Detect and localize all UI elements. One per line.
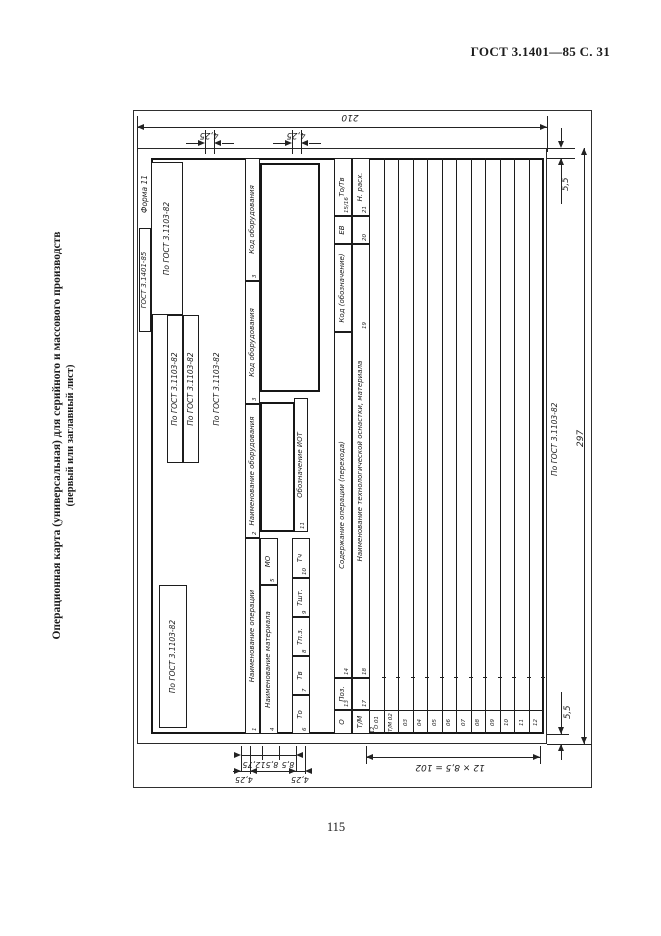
line-number-cell: 07: [457, 710, 471, 734]
page-number: 115: [316, 820, 356, 835]
stamp-box-a: По ГОСТ 3.1103-82: [151, 162, 183, 315]
pos-column-tick: [541, 677, 545, 678]
body-line: 03: [399, 158, 414, 734]
body-line: О 0112: [370, 158, 385, 734]
body-line: 04: [414, 158, 429, 734]
line-number-cell: 06: [443, 710, 457, 734]
body-line: 11: [515, 158, 530, 734]
graph-num-1: 1: [253, 728, 259, 732]
dim-sheet-width: 210: [330, 111, 370, 122]
stamp-box-c: По ГОСТ 3.1103-82: [159, 585, 187, 728]
col-operation-label: Наименование операции: [249, 590, 256, 682]
graph-num-12: 12: [371, 727, 376, 733]
graph-num: 7: [303, 689, 309, 693]
time-label: То: [297, 710, 304, 719]
document-page: ГОСТ 3.1401—85 С. 31 Операционная карта …: [0, 0, 661, 936]
graph-num-17: 17: [363, 700, 369, 707]
col-material-label: Наименование материала: [265, 611, 272, 708]
graph-num: 9: [303, 611, 309, 615]
dim-margin-right: 5,5: [560, 170, 572, 198]
time-label: Тч: [297, 554, 304, 562]
caption-line-1: Операционная карта (универсальная) для с…: [50, 228, 64, 643]
graph-num-4: 4: [271, 728, 277, 732]
col-time-4: Тшт.9: [292, 578, 310, 617]
time-columns-row: То6Тв7Тп.з.8Тшт.9Тч10: [292, 538, 310, 734]
row-o-content: Содержание операции (перехода): [334, 332, 352, 678]
col-equipment-code-2: Код оборудования 3: [245, 158, 260, 281]
graph-num: 8: [303, 650, 309, 654]
dim-body-rows: 12 × 8,5 = 102: [395, 761, 505, 772]
time-label: Тшт.: [297, 589, 304, 606]
col-iot-label: Обозначение ИОТ: [297, 432, 304, 498]
body-line: 06: [443, 158, 458, 734]
col-iot: Обозначение ИОТ 11: [294, 398, 308, 532]
caption-line-2: (первый или заглавный лист): [64, 228, 77, 643]
dim-sheet-height: 297: [575, 420, 588, 456]
col-equip-code2-label: Код оборудования: [249, 185, 256, 254]
line-number-cell: 10: [501, 710, 515, 734]
col-operation-name: Наименование операции 1: [245, 538, 260, 734]
line-number-cell: 05: [428, 710, 442, 734]
graph-num-19: 19: [363, 322, 369, 329]
col-time-1: То6: [292, 695, 310, 734]
figure-caption: Операционная карта (универсальная) для с…: [50, 228, 78, 643]
graph-num-21: 21: [363, 206, 369, 213]
dim-top-2: 4,25: [280, 130, 312, 140]
dim-margin-left: 5,5: [562, 698, 574, 726]
col-mo: МО 5: [260, 538, 278, 585]
graph-num: 10: [303, 568, 309, 575]
col-mo-label: МО: [265, 556, 272, 568]
body-line: Т/М 02: [385, 158, 400, 734]
body-line: 07: [457, 158, 472, 734]
line-number-cell: 08: [472, 710, 486, 734]
body-line: 08: [472, 158, 487, 734]
row-tm-letter: Т/М: [352, 710, 370, 734]
line-number-cell: 11: [515, 710, 529, 734]
graph-num-3b: 3: [253, 275, 259, 279]
col-time-5: Тч10: [292, 538, 310, 578]
col-equipment-label: Наименование оборудования: [249, 417, 256, 526]
col-material-name: Наименование материала 4: [260, 585, 278, 734]
graph-num-11: 11: [301, 522, 307, 529]
stamp-zone-note: По ГОСТ 3.1103-82: [209, 315, 225, 463]
side-note: По ГОСТ 3.1103-82: [548, 388, 561, 490]
dim-top-1: 4,25: [193, 130, 225, 140]
line-number-cell: Т/М 02: [385, 710, 399, 734]
graph-num-20: 20: [363, 234, 369, 241]
line-number-cell: О 0112: [370, 710, 384, 734]
time-label: Тп.з.: [297, 628, 304, 645]
line-number-cell: 12: [530, 710, 544, 734]
dim-bottom-5: 4,25: [287, 774, 313, 784]
dim-bottom-2: 8,5: [264, 759, 280, 769]
graph-num: 6: [303, 728, 309, 732]
graph-num-13: 13: [345, 700, 351, 707]
row-o-letter: О: [334, 710, 352, 734]
col-equipment-name: Наименование оборудования 2: [245, 404, 260, 538]
dim-bottom-4: 4,25: [231, 774, 257, 784]
graph-num-2: 2: [253, 532, 259, 536]
body-line: 09: [486, 158, 501, 734]
graph-num-3a: 3: [253, 398, 259, 402]
row-o-ev: ЕВ: [334, 216, 352, 244]
designation-box: ГОСТ 3.1401-85: [139, 228, 151, 332]
row-o-code: Код (обозначение): [334, 244, 352, 332]
graph-num-15-16: 15/16: [345, 197, 351, 213]
equipment-code-field-1: [260, 163, 320, 392]
line-number-cell: 09: [486, 710, 500, 734]
body-line: 12: [530, 158, 545, 734]
body-line: 10: [501, 158, 516, 734]
body-line: 05: [428, 158, 443, 734]
row-tm-content: Наименование технологической оснастки, м…: [352, 244, 370, 678]
col-equip-code1-label: Код оборудования: [249, 308, 256, 377]
forma-label: Форма 11: [139, 158, 151, 230]
graph-num-18: 18: [363, 668, 369, 675]
line-number-cell: 03: [399, 710, 413, 734]
graph-num-5: 5: [271, 579, 277, 583]
col-time-3: Тп.з.8: [292, 617, 310, 656]
stamp-box-b1: По ГОСТ 3.1103-82: [167, 315, 183, 463]
form-drawing: ГОСТ 3.1401-85 Форма 11 По ГОСТ 3.1103-8…: [137, 148, 547, 744]
stamp-box-b2: По ГОСТ 3.1103-82: [183, 315, 199, 463]
graph-num-14: 14: [345, 668, 351, 675]
time-label: Тв: [297, 671, 304, 679]
equipment-code-field-2: [260, 402, 295, 532]
line-number-cell: 04: [414, 710, 428, 734]
col-time-2: Тв7: [292, 656, 310, 695]
col-equipment-code-1: Код оборудования 3: [245, 281, 260, 404]
page-title: ГОСТ 3.1401—85 С. 31: [420, 44, 610, 60]
